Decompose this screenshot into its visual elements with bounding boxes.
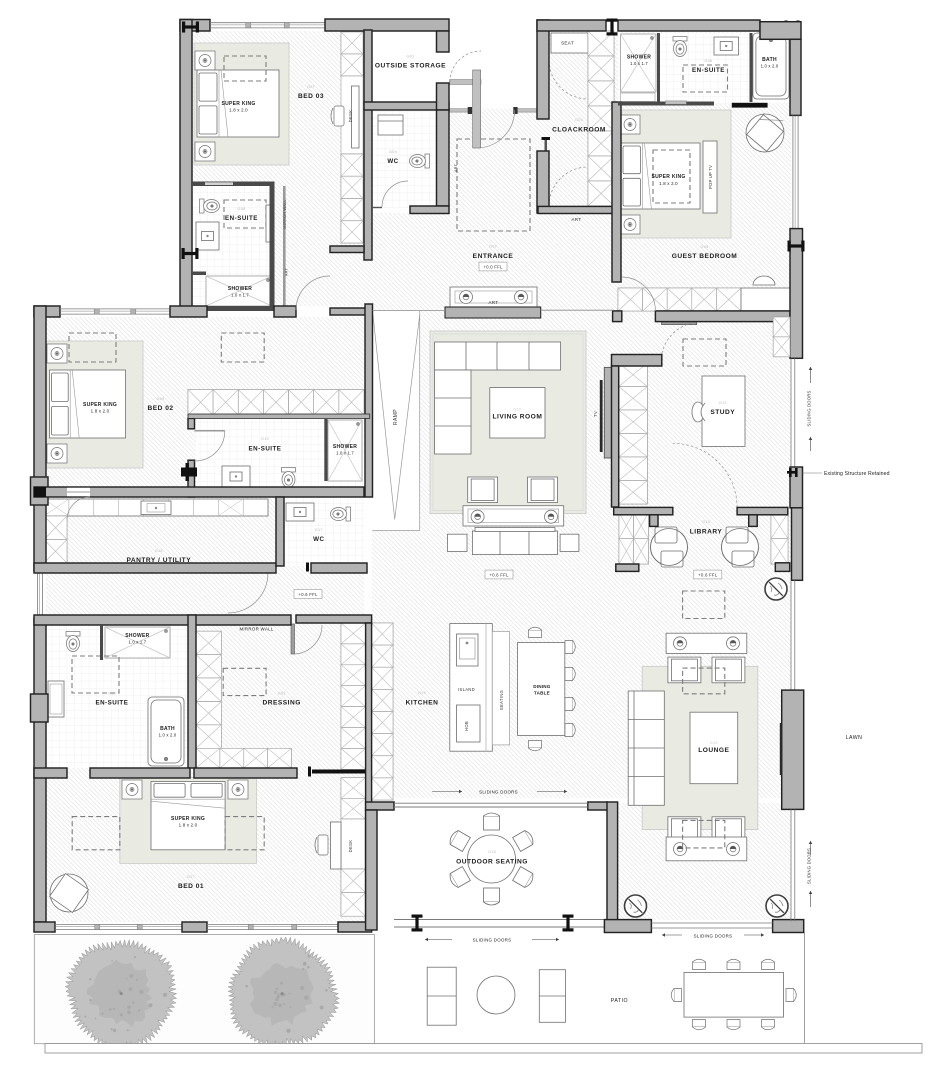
svg-text:G18: G18 — [108, 692, 116, 696]
svg-text:LIVING ROOM: LIVING ROOM — [492, 414, 542, 421]
svg-text:BATH: BATH — [160, 726, 175, 732]
svg-text:+0.6 FFL: +0.6 FFL — [698, 573, 718, 578]
svg-text:ART: ART — [453, 163, 458, 172]
svg-text:SHOWER: SHOWER — [627, 55, 651, 61]
svg-text:G04: G04 — [389, 150, 397, 154]
svg-text:G03: G03 — [575, 118, 583, 122]
svg-text:KITCHEN: KITCHEN — [406, 700, 439, 707]
svg-text:1.0 x 2.0: 1.0 x 2.0 — [761, 64, 779, 69]
svg-text:EN-SUITE: EN-SUITE — [95, 700, 128, 707]
svg-text:PATIO: PATIO — [611, 998, 628, 1004]
svg-text:+0.6 FFL: +0.6 FFL — [489, 573, 509, 578]
svg-text:1.8 x 2.0: 1.8 x 2.0 — [659, 181, 678, 186]
svg-text:PANTRY / UTILITY: PANTRY / UTILITY — [126, 557, 191, 564]
svg-text:SUPER KING: SUPER KING — [171, 816, 205, 822]
svg-text:G05: G05 — [700, 245, 708, 249]
svg-text:G14: G14 — [418, 691, 426, 695]
svg-text:LAWN: LAWN — [846, 735, 863, 741]
svg-text:BED 01: BED 01 — [178, 883, 204, 890]
svg-text:G13: G13 — [702, 520, 710, 524]
svg-text:1.0 x 1.7: 1.0 x 1.7 — [231, 293, 249, 298]
svg-text:+0.0 FFL: +0.0 FFL — [483, 265, 503, 270]
svg-text:HOB: HOB — [464, 721, 469, 731]
svg-text:OUTSIDE STORAGE: OUTSIDE STORAGE — [375, 63, 446, 70]
svg-text:G02: G02 — [278, 692, 286, 696]
svg-text:STUDY: STUDY — [710, 409, 735, 416]
svg-text:SEATING: SEATING — [499, 690, 504, 710]
svg-text:G12: G12 — [719, 401, 727, 405]
svg-text:G17: G17 — [315, 528, 323, 532]
svg-text:1.0 x 1.7: 1.0 x 1.7 — [128, 640, 146, 645]
svg-text:SLIDING DOORS: SLIDING DOORS — [807, 391, 812, 427]
svg-text:WC: WC — [313, 536, 324, 543]
svg-text:TABLE: TABLE — [534, 691, 550, 696]
svg-text:ISLAND: ISLAND — [458, 687, 475, 692]
svg-text:G01: G01 — [406, 55, 414, 59]
svg-text:DESK: DESK — [348, 840, 353, 853]
svg-text:ART: ART — [489, 300, 499, 305]
svg-text:G15: G15 — [488, 850, 496, 854]
svg-text:SUPER KING: SUPER KING — [221, 101, 255, 107]
svg-text:G07: G07 — [307, 85, 315, 89]
svg-text:SLIDING DOORS: SLIDING DOORS — [473, 938, 512, 943]
svg-text:DRESSING: DRESSING — [262, 700, 300, 707]
svg-text:1.0 x 2.0: 1.0 x 2.0 — [159, 733, 177, 738]
svg-text:G06: G06 — [704, 59, 712, 63]
svg-text:1.0 x 1.7: 1.0 x 1.7 — [630, 61, 648, 66]
svg-text:SLIDING DOORS: SLIDING DOORS — [694, 934, 733, 939]
svg-text:SEAT: SEAT — [561, 41, 574, 46]
svg-text:DESK: DESK — [348, 110, 353, 123]
svg-text:EN-SUITE: EN-SUITE — [249, 446, 282, 453]
svg-text:EN-SUITE: EN-SUITE — [225, 215, 258, 222]
svg-text:1.0 x 1.7: 1.0 x 1.7 — [336, 451, 354, 456]
svg-text:Existing Structure Retained: Existing Structure Retained — [824, 471, 890, 477]
svg-text:SLIDING DOORS: SLIDING DOORS — [479, 790, 518, 795]
svg-text:ENTRANCE: ENTRANCE — [473, 253, 514, 260]
svg-text:SHOWER: SHOWER — [333, 444, 357, 450]
svg-text:G10: G10 — [261, 437, 269, 441]
svg-text:EN-SUITE: EN-SUITE — [692, 67, 725, 74]
svg-text:GUEST BEDROOM: GUEST BEDROOM — [672, 253, 737, 260]
svg-text:SHOWER: SHOWER — [228, 286, 252, 292]
svg-text:WC: WC — [387, 158, 398, 165]
svg-text:1.8 x 2.0: 1.8 x 2.0 — [179, 823, 198, 828]
svg-text:POP UP TV: POP UP TV — [708, 165, 713, 189]
svg-text:SUPER KING: SUPER KING — [651, 174, 685, 180]
svg-text:CLOACKROOM: CLOACKROOM — [552, 127, 606, 134]
svg-text:G17: G17 — [187, 875, 195, 879]
svg-text:G08: G08 — [237, 207, 245, 211]
svg-text:SHOWER: SHOWER — [125, 633, 149, 639]
svg-text:BED 02: BED 02 — [147, 405, 173, 412]
svg-text:1.8 x 2.0: 1.8 x 2.0 — [229, 108, 248, 113]
svg-text:MIRROR WALL: MIRROR WALL — [239, 627, 273, 632]
svg-text:MIRROR WALL: MIRROR WALL — [282, 199, 287, 229]
svg-text:G11: G11 — [514, 408, 522, 412]
svg-text:SUPER KING: SUPER KING — [83, 402, 117, 408]
svg-text:ART: ART — [284, 267, 289, 276]
svg-text:BATH: BATH — [762, 57, 777, 63]
svg-text:G15: G15 — [710, 741, 718, 745]
svg-text:G02: G02 — [489, 245, 497, 249]
svg-text:1.8 x 2.0: 1.8 x 2.0 — [91, 409, 110, 414]
svg-text:RAMP: RAMP — [393, 409, 399, 425]
svg-text:ART: ART — [572, 217, 582, 222]
svg-text:+0.6 FFL: +0.6 FFL — [298, 592, 318, 597]
svg-text:DINING: DINING — [533, 684, 551, 689]
svg-text:TV: TV — [593, 411, 598, 417]
svg-text:G16: G16 — [155, 549, 163, 553]
svg-text:BED 03: BED 03 — [298, 93, 324, 100]
svg-text:LOUNGE: LOUNGE — [698, 747, 729, 754]
svg-text:G09: G09 — [156, 397, 164, 401]
svg-text:OUTDOOR SEATING: OUTDOOR SEATING — [456, 859, 528, 866]
svg-text:LIBRARY: LIBRARY — [690, 529, 723, 536]
